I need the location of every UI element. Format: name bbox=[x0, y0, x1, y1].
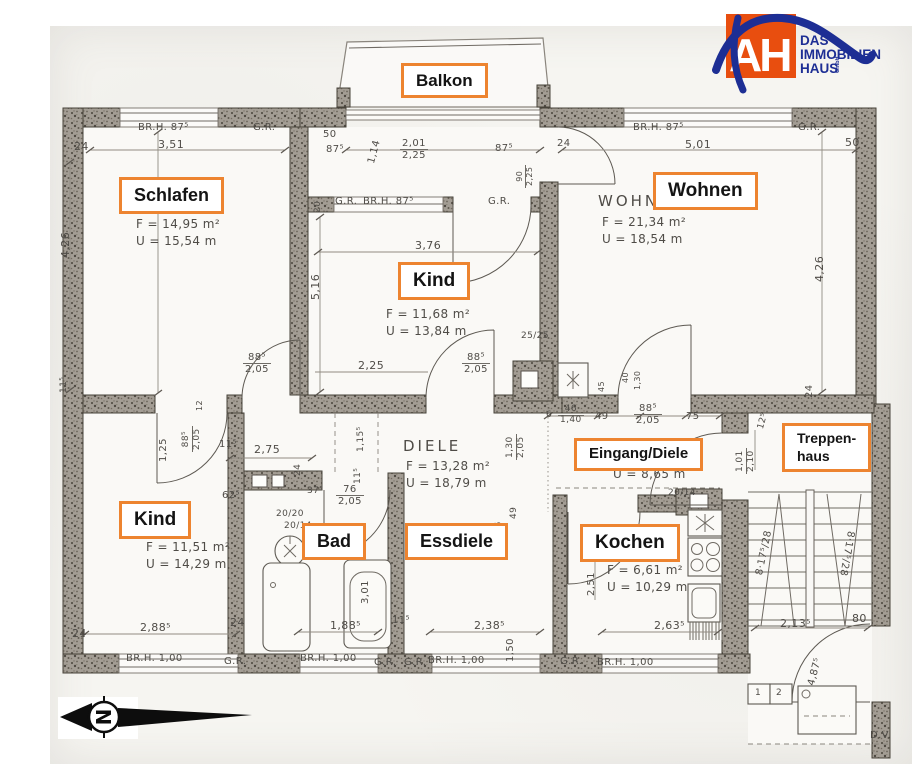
room-label: Kind bbox=[119, 501, 191, 539]
dimension-text: 24 bbox=[804, 384, 815, 398]
dimension-text: G.R. bbox=[488, 196, 510, 207]
dimension-text: 4,26 bbox=[60, 232, 72, 258]
dimension-text: 1,88⁵ bbox=[330, 620, 361, 632]
dimension-text: 20/14 bbox=[668, 489, 696, 499]
logo-word-haus: HAUS bbox=[800, 61, 838, 76]
dimension-text-denominator: 1,40 bbox=[558, 415, 584, 426]
dimension-text: 12 bbox=[196, 400, 205, 411]
dimension-text: 2,13⁵ bbox=[780, 618, 811, 630]
kitchen-fixtures bbox=[688, 510, 722, 640]
dimension-annotation: F = 11,68 m² bbox=[386, 308, 470, 321]
dimension-text-denominator: 2,05 bbox=[462, 363, 490, 375]
dimension-text: 88⁵ bbox=[634, 403, 662, 414]
dimension-annotation: 24 bbox=[230, 617, 245, 629]
dimension-annotation: 2 bbox=[776, 689, 782, 699]
dimension-text: G.R. bbox=[404, 657, 426, 668]
dimension-text: 6 bbox=[546, 411, 552, 421]
dimension-text: 3,76 bbox=[415, 240, 441, 252]
dimension-annotation: 11⁵ bbox=[392, 615, 410, 626]
dimension-text: BR.H. 1,00 bbox=[126, 653, 183, 664]
dimension-annotation: 5,01 bbox=[685, 139, 711, 151]
dimension-annotation: G.R. bbox=[488, 196, 510, 207]
dimension-annotation: 11⁵ bbox=[60, 377, 70, 393]
dimension-annotation: G.R. bbox=[560, 656, 582, 667]
dimension-text: 62⁵ bbox=[222, 490, 240, 501]
dimension-text: 3,51 bbox=[158, 139, 184, 151]
dimension-text: G.R. bbox=[253, 122, 275, 133]
dimension-annotation: 45 bbox=[598, 381, 607, 392]
dimension-annotation: G.R. bbox=[374, 657, 396, 668]
dimension-annotation: 2,13⁵ bbox=[780, 618, 811, 630]
dimension-annotation: F = 6,61 m² bbox=[607, 564, 683, 577]
dimension-text: 24 bbox=[74, 141, 89, 153]
dimension-text: F = 21,34 m² bbox=[602, 216, 686, 229]
dimension-annotation: 1,50 bbox=[505, 638, 516, 662]
dimension-annotation: 1,30 2,05 bbox=[506, 434, 527, 460]
room-label-text: Kind bbox=[134, 508, 176, 532]
dimension-text: 88⁵ bbox=[182, 426, 192, 452]
dimension-text: 46 bbox=[558, 405, 584, 415]
room-label: Balkon bbox=[401, 63, 488, 98]
dimension-annotation: G.R. bbox=[335, 196, 357, 207]
dimension-text: 76 bbox=[336, 484, 364, 495]
dimension-text: 11⁵ bbox=[354, 468, 364, 484]
dimension-text: 1,25 bbox=[158, 438, 169, 462]
dimension-annotation: 24 bbox=[74, 141, 89, 153]
dimension-annotation: 46 1,40 bbox=[558, 405, 584, 426]
dimension-annotation: 20/20 bbox=[276, 510, 304, 520]
dimension-annotation: 2,51 bbox=[586, 572, 597, 596]
dimension-text: 90 bbox=[516, 165, 525, 188]
dimension-text: 1,15⁵ bbox=[357, 426, 367, 452]
dimension-annotation: BR.H. 87⁵ bbox=[138, 122, 189, 133]
dimension-annotation: 49 bbox=[510, 507, 520, 519]
dimension-annotation: BR.H. 1,00 bbox=[428, 655, 485, 666]
dimension-text: F = 11,51 m² bbox=[146, 541, 230, 554]
room-label-text: Kind bbox=[413, 269, 455, 293]
dimension-text: 2,38⁵ bbox=[474, 620, 505, 632]
dimension-annotation: 6 bbox=[546, 411, 552, 421]
dimension-annotation: 24 bbox=[72, 628, 87, 640]
dimension-annotation: 24 bbox=[294, 464, 304, 476]
dimension-text: 24 bbox=[294, 464, 304, 476]
dimension-text: 11⁵ bbox=[60, 377, 70, 393]
dimension-annotation: 88⁵ 2,05 bbox=[182, 426, 203, 452]
dimension-text: 88⁵ bbox=[462, 352, 490, 363]
dimension-text-denominator: 2,05 bbox=[192, 426, 203, 452]
dimension-text: 50 bbox=[845, 137, 860, 149]
room-label-text: Balkon bbox=[416, 70, 473, 91]
dimension-annotation: 62⁵ bbox=[222, 490, 240, 501]
room-label-text: Treppen- bbox=[797, 430, 856, 448]
dimension-annotation: 1 bbox=[755, 689, 761, 699]
plan-footer-note: D.V. bbox=[870, 730, 891, 741]
dimension-annotation: 11⁵ bbox=[219, 439, 237, 450]
dimension-annotation: 49 bbox=[595, 411, 609, 422]
dimension-text: 5,01 bbox=[685, 139, 711, 151]
dimension-text: 75 bbox=[686, 411, 700, 422]
dimension-annotation: F = 13,28 m² bbox=[406, 460, 490, 473]
dimension-text: G.R. bbox=[335, 196, 357, 207]
dimension-annotation: 80 bbox=[852, 613, 867, 625]
dimension-annotation: 3,51 bbox=[158, 139, 184, 151]
dimension-text: BR.H. 1,00 bbox=[597, 657, 654, 668]
dimension-text: U = 13,84 m bbox=[386, 325, 467, 338]
dimension-annotation: 88⁵ 2,05 bbox=[462, 352, 490, 375]
room-label: Kochen bbox=[580, 524, 680, 562]
dimension-text: 24 bbox=[557, 138, 571, 149]
dimension-annotation: 2,25 bbox=[358, 360, 384, 372]
dimension-text-denominator: 2,05 bbox=[243, 363, 271, 375]
room-label-text: Schlafen bbox=[134, 184, 209, 207]
dimension-text: BR.H. 87⁵ bbox=[138, 122, 189, 133]
dimension-text-denominator: 2,05 bbox=[336, 495, 364, 507]
dimension-text: 88⁵ bbox=[243, 352, 271, 363]
dimension-annotation: 20 bbox=[314, 201, 324, 213]
dimension-annotation: 12 bbox=[196, 400, 205, 411]
dimension-text: 45 bbox=[598, 381, 607, 392]
room-label: Eingang/Diele bbox=[574, 438, 703, 471]
dimension-text: 87⁵ bbox=[326, 144, 344, 155]
dimension-text: G.R. bbox=[374, 657, 396, 668]
dimension-text: 80 bbox=[852, 613, 867, 625]
dimension-annotation: F = 11,51 m² bbox=[146, 541, 230, 554]
dimension-text: G.R. bbox=[224, 656, 246, 667]
dimension-text: F = 11,68 m² bbox=[386, 308, 470, 321]
dimension-annotation: 1,30 bbox=[634, 371, 643, 390]
room-label-text: Bad bbox=[317, 530, 351, 553]
room-label: Schlafen bbox=[119, 177, 224, 214]
dimension-text: 1,01 bbox=[736, 448, 746, 474]
dimension-text: BR.H. 1,00 bbox=[300, 653, 357, 664]
dimension-text: 20 bbox=[314, 201, 324, 213]
dimension-annotation: 2,75 bbox=[254, 444, 280, 456]
dimension-annotation: 1,15⁵ bbox=[357, 426, 367, 452]
dimension-annotation: 4,26 bbox=[814, 256, 826, 282]
dimension-annotation: G.R. bbox=[224, 656, 246, 667]
dimension-text: BR.H. 87⁵ bbox=[363, 196, 414, 207]
dimension-annotation: 2,88⁵ bbox=[140, 622, 171, 634]
dimension-text-denominator: 2,25 bbox=[400, 149, 428, 161]
dimension-text: 1,30 bbox=[506, 434, 516, 460]
dimension-text: 2,63⁵ bbox=[654, 620, 685, 632]
dimension-annotation: 24 bbox=[557, 138, 571, 149]
dimension-text: 20/20 bbox=[276, 510, 304, 520]
dimension-annotation: 20/14 bbox=[668, 489, 696, 499]
dimension-text: BR.H. 1,00 bbox=[428, 655, 485, 666]
dimension-annotation: 2,63⁵ bbox=[654, 620, 685, 632]
dimension-annotation: 24 bbox=[804, 384, 815, 398]
dimension-annotation: 2,38⁵ bbox=[474, 620, 505, 632]
dimension-annotation: G.R. bbox=[798, 122, 820, 133]
room-label-text: Wohnen bbox=[668, 179, 743, 203]
room-label: Essdiele bbox=[405, 523, 508, 560]
dimension-text: 37⁵ bbox=[307, 487, 323, 497]
dimension-text: U = 15,54 m bbox=[136, 235, 217, 248]
dimension-annotation: 40 bbox=[622, 372, 631, 383]
dimension-text: 49 bbox=[510, 507, 520, 519]
dimension-annotation: 75 bbox=[686, 411, 700, 422]
dimension-annotation: DIELE bbox=[403, 438, 461, 455]
dimension-annotation: U = 13,84 m bbox=[386, 325, 467, 338]
dimension-text: BR.H. 87⁵ bbox=[633, 122, 684, 133]
dimension-text: 1,50 bbox=[505, 638, 516, 662]
company-logo: AH DAS IMMOBILIEN HAUS GmbH bbox=[710, 8, 915, 96]
room-label: Treppen- haus bbox=[782, 423, 871, 472]
dimension-text: 2 bbox=[776, 689, 782, 699]
room-label: Wohnen bbox=[653, 172, 758, 210]
dimension-annotation: U = 15,54 m bbox=[136, 235, 217, 248]
dimension-text: G.R. bbox=[560, 656, 582, 667]
dimension-annotation: 87⁵ bbox=[495, 143, 513, 154]
dimension-annotation: G.R. bbox=[404, 657, 426, 668]
dimension-text: 2,88⁵ bbox=[140, 622, 171, 634]
dimension-annotation: 1,25 bbox=[158, 438, 169, 462]
dimension-text: U = 14,29 m bbox=[146, 558, 227, 571]
dimension-annotation: 4,26 bbox=[60, 232, 72, 258]
dimension-annotation: 88⁵ 2,05 bbox=[634, 403, 662, 426]
dimension-annotation: 5,16 bbox=[310, 274, 322, 300]
dimension-annotation: U = 18,79 m bbox=[406, 477, 487, 490]
dimension-text: U = 18,54 m bbox=[602, 233, 683, 246]
dimension-text: 3,01 bbox=[360, 580, 371, 604]
dimension-annotation: 11⁵ bbox=[354, 468, 364, 484]
dimension-text: DIELE bbox=[403, 438, 461, 455]
dimension-annotation: 1,01 2,10 bbox=[736, 448, 757, 474]
dimension-text: 24 bbox=[230, 617, 245, 629]
dimension-annotation: U = 14,29 m bbox=[146, 558, 227, 571]
dimension-text: 1,30 bbox=[634, 371, 643, 390]
dimension-text-denominator: 2,25 bbox=[525, 165, 535, 188]
dimension-annotation: 50 bbox=[323, 129, 337, 140]
dimension-annotation: 90 2,25 bbox=[516, 165, 535, 188]
dimension-annotation: 2,01 2,25 bbox=[400, 138, 428, 161]
dimension-text: G.R. bbox=[798, 122, 820, 133]
logo-word-das: DAS bbox=[800, 33, 829, 48]
room-label-text: Essdiele bbox=[420, 530, 493, 553]
dimension-annotation: BR.H. 1,00 bbox=[300, 653, 357, 664]
dimension-annotation: G.R. bbox=[253, 122, 275, 133]
dimension-annotation: 50 bbox=[845, 137, 860, 149]
dimension-annotation: 88⁵ 2,05 bbox=[243, 352, 271, 375]
dimension-text: 2,25 bbox=[358, 360, 384, 372]
dimension-annotation: BR.H. 87⁵ bbox=[363, 196, 414, 207]
dimension-text: 11⁵ bbox=[219, 439, 237, 450]
dimension-text: 2,75 bbox=[254, 444, 280, 456]
dimension-text: 24 bbox=[72, 628, 87, 640]
dimension-text: U = 10,29 m bbox=[607, 581, 688, 594]
hall-basin bbox=[558, 363, 588, 397]
dimension-text: 11⁵ bbox=[392, 615, 410, 626]
dimension-text: F = 14,95 m² bbox=[136, 218, 220, 231]
dimension-text: F = 13,28 m² bbox=[406, 460, 490, 473]
logo-word-gmbh: GmbH bbox=[835, 56, 841, 73]
dimension-annotation: BR.H. 1,00 bbox=[126, 653, 183, 664]
dimension-annotation: 1,88⁵ bbox=[330, 620, 361, 632]
dimension-text-denominator: 2,10 bbox=[746, 448, 757, 474]
dimension-annotation: U = 18,54 m bbox=[602, 233, 683, 246]
room-label-text: Kochen bbox=[595, 531, 665, 555]
dimension-annotation: F = 14,95 m² bbox=[136, 218, 220, 231]
dimension-annotation: BR.H. 87⁵ bbox=[633, 122, 684, 133]
dimension-text: 2,51 bbox=[586, 572, 597, 596]
dimension-annotation: 3,01 bbox=[360, 580, 371, 604]
dimension-annotation: BR.H. 1,00 bbox=[597, 657, 654, 668]
dimension-text: 4,26 bbox=[814, 256, 826, 282]
dimension-text: 25/25 bbox=[521, 332, 549, 342]
dimension-text: U = 18,79 m bbox=[406, 477, 487, 490]
dimension-text: 49 bbox=[595, 411, 609, 422]
room-label: Bad bbox=[302, 523, 366, 560]
dimension-text: 50 bbox=[323, 129, 337, 140]
dimension-text: 5,16 bbox=[310, 274, 322, 300]
room-label-text-line2: haus bbox=[797, 448, 856, 466]
dimension-text-denominator: 2,05 bbox=[634, 414, 662, 426]
dimension-annotation: 37⁵ bbox=[307, 487, 323, 497]
dimension-annotation: 76 2,05 bbox=[336, 484, 364, 507]
dimension-annotation: 87⁵ bbox=[326, 144, 344, 155]
dimension-annotation: 3,76 bbox=[415, 240, 441, 252]
dimension-annotation: 25/25 bbox=[521, 332, 549, 342]
dimension-annotation: U = 10,29 m bbox=[607, 581, 688, 594]
dimension-text: F = 6,61 m² bbox=[607, 564, 683, 577]
dimension-annotation: F = 21,34 m² bbox=[602, 216, 686, 229]
dimension-text: 40 bbox=[622, 372, 631, 383]
dimension-text-denominator: 2,05 bbox=[516, 434, 527, 460]
dimension-text: 87⁵ bbox=[495, 143, 513, 154]
dimension-text: 2,01 bbox=[400, 138, 428, 149]
room-label-text: Eingang/Diele bbox=[589, 445, 688, 464]
room-label: Kind bbox=[398, 262, 470, 300]
dimension-text: 1 bbox=[755, 689, 761, 699]
